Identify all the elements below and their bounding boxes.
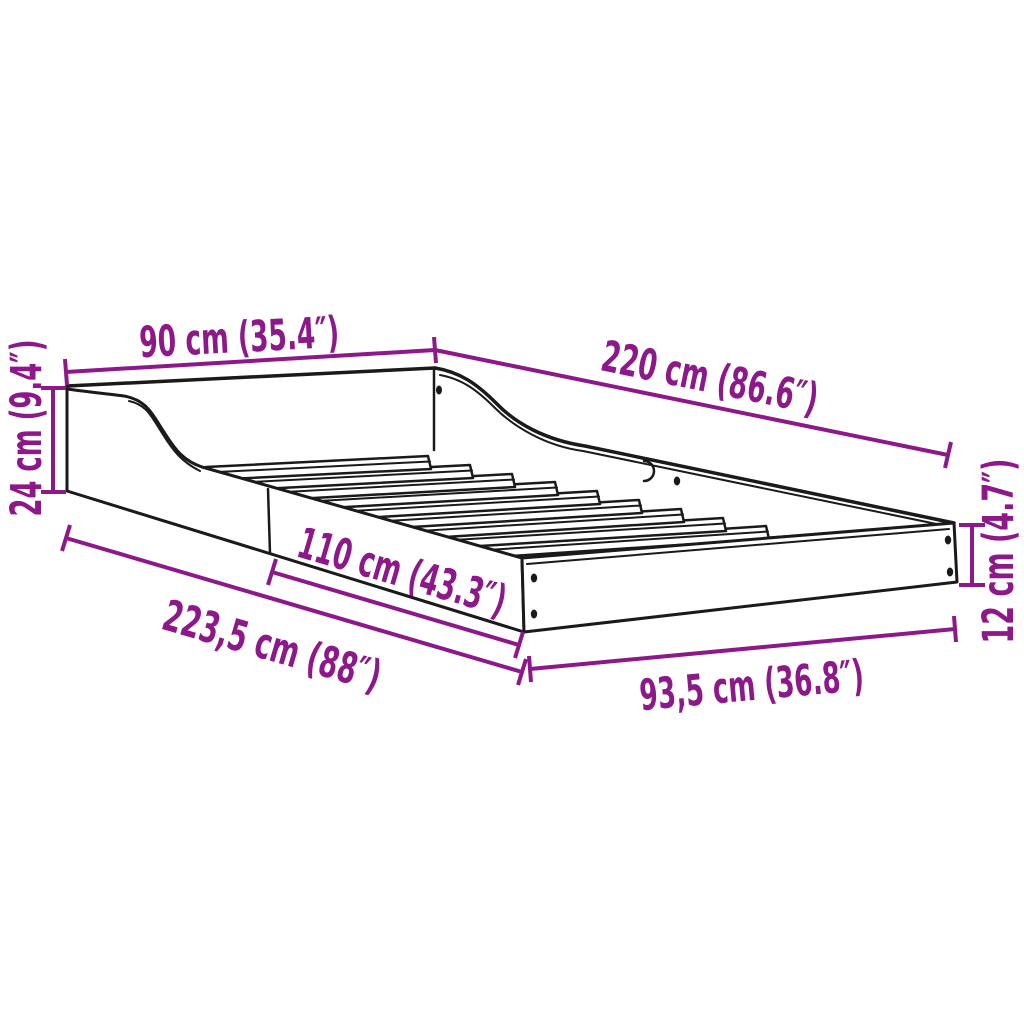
dimension-head-width: 90 cm (35.4″): [65, 308, 436, 385]
dim-label-foot-height: 12 cm (4.7″): [974, 459, 1024, 644]
dimension-diagram-canvas: 90 cm (35.4″) 220 cm (86.6″) 24 cm (9.4″…: [0, 0, 1024, 1024]
dimension-side-length-top: 220 cm (86.6″): [435, 332, 951, 468]
screw-icon: [945, 536, 951, 545]
headboard-top-edge: [67, 368, 435, 386]
screw-icon: [674, 477, 680, 486]
dim-label-headboard-height: 24 cm (9.4″): [2, 340, 52, 517]
dimension-foot-height: 12 cm (4.7″): [959, 459, 1024, 644]
dimension-foot-width: 93,5 cm (36.8″): [529, 616, 956, 721]
screw-icon: [947, 568, 953, 577]
bed-frame-dimension-diagram: 90 cm (35.4″) 220 cm (86.6″) 24 cm (9.4″…: [0, 0, 1024, 1024]
screw-icon: [436, 386, 442, 395]
dim-label-head-width: 90 cm (35.4″): [138, 308, 340, 368]
dim-label-overall-length: 223,5 cm (88″): [157, 591, 387, 702]
screw-icon: [531, 574, 537, 583]
dimension-headboard-height: 24 cm (9.4″): [2, 340, 66, 517]
dim-label-foot-width: 93,5 cm (36.8″): [637, 651, 866, 721]
dim-label-side-length-top: 220 cm (86.6″): [597, 332, 823, 425]
screw-icon: [531, 610, 537, 619]
